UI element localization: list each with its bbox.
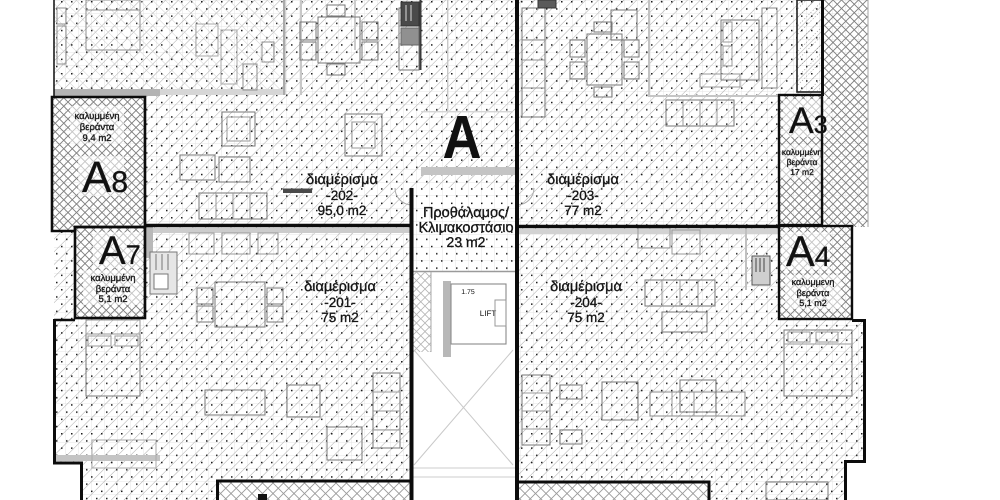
svg-text:LIFT: LIFT — [480, 309, 497, 318]
svg-text:καλυμμένη: καλυμμένη — [74, 111, 119, 122]
svg-text:-203-: -203- — [567, 188, 599, 203]
svg-text:75 m2: 75 m2 — [321, 310, 359, 325]
svg-text:9,4 m2: 9,4 m2 — [82, 133, 111, 144]
svg-text:-202-: -202- — [326, 188, 358, 203]
svg-text:23 m2: 23 m2 — [447, 234, 486, 250]
svg-text:διαμέρισμα: διαμέρισμα — [550, 279, 622, 295]
svg-text:διαμέρισμα: διαμέρισμα — [304, 279, 376, 295]
svg-text:διαμέρισμα: διαμέρισμα — [547, 172, 619, 188]
svg-text:καλυμμενη: καλυμμενη — [792, 277, 835, 287]
svg-text:βεράντα: βεράντα — [797, 288, 830, 298]
svg-text:βεράντα: βεράντα — [80, 122, 115, 133]
svg-text:βεράντα: βεράντα — [787, 157, 818, 167]
svg-text:A: A — [443, 103, 482, 171]
svg-text:1.75: 1.75 — [461, 289, 475, 296]
svg-text:5,1 m2: 5,1 m2 — [98, 294, 127, 305]
svg-text:καλυμμένη: καλυμμένη — [90, 273, 135, 284]
svg-text:17 m2: 17 m2 — [790, 167, 814, 177]
svg-text:-204-: -204- — [570, 295, 602, 310]
svg-text:5,1 m2: 5,1 m2 — [799, 298, 827, 308]
svg-text:διαμέρισμα: διαμέρισμα — [306, 172, 378, 188]
svg-text:75 m2: 75 m2 — [567, 310, 605, 325]
svg-text:καλυμμένη: καλυμμένη — [782, 147, 823, 157]
svg-text:95,0 m2: 95,0 m2 — [318, 203, 367, 218]
svg-text:Προθάλαμος/: Προθάλαμος/ — [423, 205, 510, 221]
svg-text:77 m2: 77 m2 — [564, 203, 602, 218]
svg-text:-201-: -201- — [324, 295, 356, 310]
